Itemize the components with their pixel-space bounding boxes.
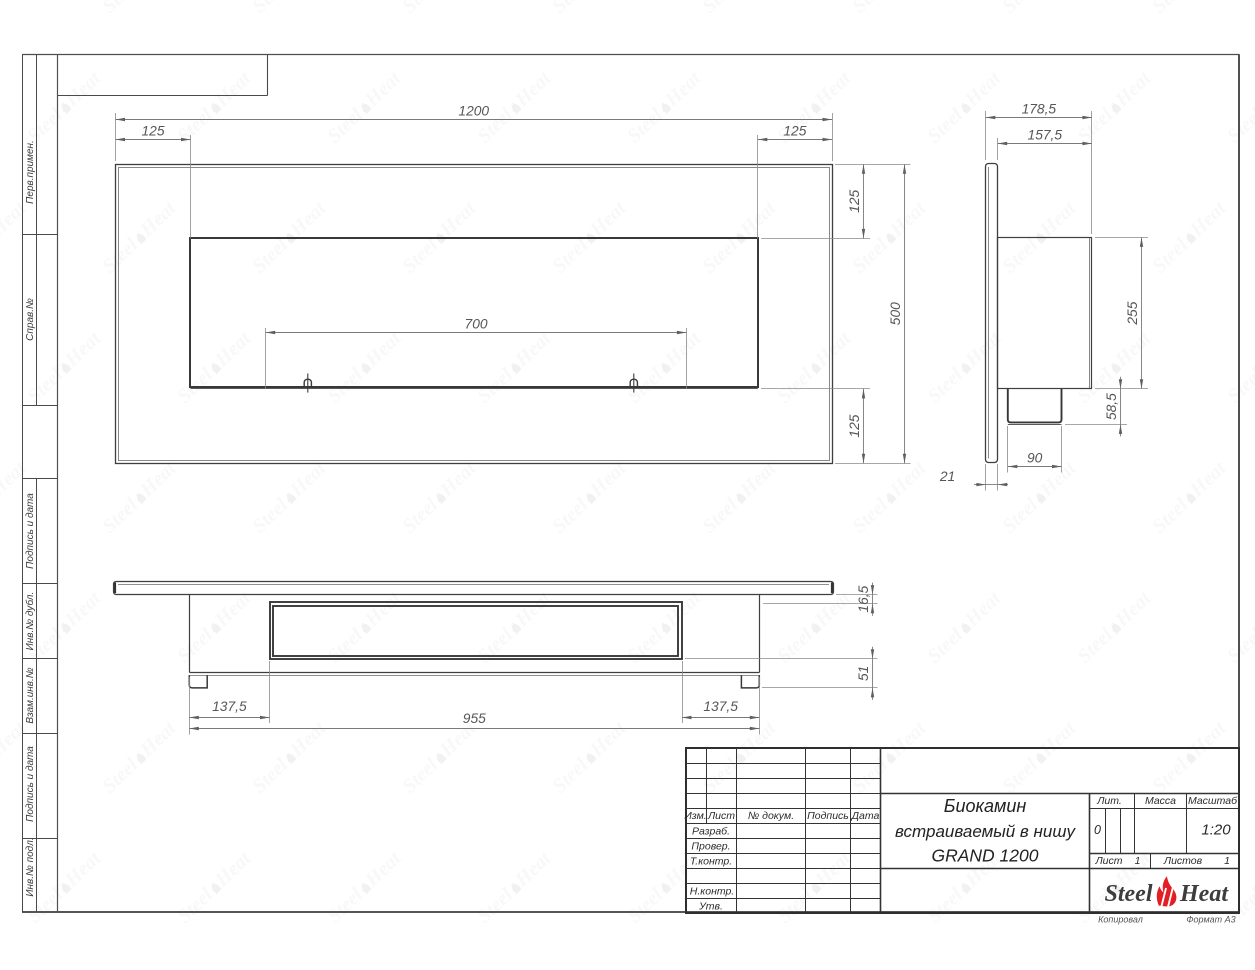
svg-text:21: 21 <box>939 469 955 484</box>
svg-text:Steel♞Heat: Steel♞Heat <box>173 66 256 147</box>
svg-text:Взам.инв.№: Взам.инв.№ <box>25 667 36 723</box>
svg-text:0: 0 <box>1094 823 1101 837</box>
svg-text:Перв.примен.: Перв.примен. <box>25 140 36 204</box>
svg-text:Дата: Дата <box>851 810 880 822</box>
svg-text:16,5: 16,5 <box>856 585 871 612</box>
svg-text:1200: 1200 <box>458 104 489 119</box>
svg-text:Steel♞Heat: Steel♞Heat <box>398 0 481 18</box>
svg-text:Справ.№: Справ.№ <box>25 298 36 341</box>
svg-text:Steel♞Heat: Steel♞Heat <box>773 846 856 927</box>
svg-text:Steel♞Heat: Steel♞Heat <box>773 326 856 407</box>
svg-text:Steel♞Heat: Steel♞Heat <box>548 456 631 537</box>
svg-text:Steel♞Heat: Steel♞Heat <box>173 846 256 927</box>
svg-text:Масса: Масса <box>1145 795 1176 807</box>
svg-text:Steel♞Heat: Steel♞Heat <box>1073 66 1156 147</box>
svg-text:Steel♞Heat: Steel♞Heat <box>323 66 406 147</box>
svg-text:125: 125 <box>847 414 862 437</box>
svg-text:Steel♞Heat: Steel♞Heat <box>98 196 181 277</box>
svg-text:Steel: Steel <box>1105 881 1153 907</box>
svg-text:1: 1 <box>1224 855 1230 867</box>
svg-text:Steel♞Heat: Steel♞Heat <box>23 66 106 147</box>
svg-text:Лист: Лист <box>707 810 735 822</box>
svg-text:Листов: Листов <box>1163 855 1203 867</box>
svg-text:Steel♞Heat: Steel♞Heat <box>248 456 331 537</box>
svg-text:Steel♞Heat: Steel♞Heat <box>173 586 256 667</box>
svg-text:1:20: 1:20 <box>1201 822 1231 839</box>
svg-text:Подпись: Подпись <box>807 810 849 822</box>
svg-text:Steel♞Heat: Steel♞Heat <box>848 0 931 18</box>
svg-text:Steel♞Heat: Steel♞Heat <box>698 456 781 537</box>
svg-text:Steel♞Heat: Steel♞Heat <box>173 326 256 407</box>
svg-text:Steel♞Heat: Steel♞Heat <box>548 0 631 18</box>
svg-text:GRAND 1200: GRAND 1200 <box>932 846 1039 866</box>
svg-text:Steel♞Heat: Steel♞Heat <box>698 0 781 18</box>
svg-text:Steel♞Heat: Steel♞Heat <box>1148 716 1231 797</box>
svg-text:1: 1 <box>1135 855 1141 867</box>
svg-text:51: 51 <box>856 666 871 681</box>
svg-text:Биокамин: Биокамин <box>944 796 1027 816</box>
svg-text:137,5: 137,5 <box>212 699 247 714</box>
svg-text:Н.контр.: Н.контр. <box>690 886 734 898</box>
svg-text:Steel♞Heat: Steel♞Heat <box>1148 0 1231 18</box>
svg-text:Steel♞Heat: Steel♞Heat <box>248 0 331 18</box>
svg-text:Steel♞Heat: Steel♞Heat <box>1148 196 1231 277</box>
svg-text:125: 125 <box>783 124 806 139</box>
svg-text:Steel♞Heat: Steel♞Heat <box>0 0 31 18</box>
svg-text:Steel♞Heat: Steel♞Heat <box>398 456 481 537</box>
svg-text:Steel♞Heat: Steel♞Heat <box>98 0 181 18</box>
svg-text:встраиваемый в нишу: встраиваемый в нишу <box>895 822 1076 841</box>
svg-text:Инв.№ подл.: Инв.№ подл. <box>25 837 36 896</box>
svg-text:Steel♞Heat: Steel♞Heat <box>773 586 856 667</box>
svg-text:125: 125 <box>141 124 164 139</box>
svg-text:Разраб.: Разраб. <box>692 826 730 838</box>
svg-text:Steel♞Heat: Steel♞Heat <box>323 846 406 927</box>
svg-text:Формат А3: Формат А3 <box>1186 915 1235 925</box>
svg-text:Т.контр.: Т.контр. <box>690 856 732 868</box>
svg-text:Steel♞Heat: Steel♞Heat <box>323 326 406 407</box>
svg-text:125: 125 <box>847 189 862 212</box>
svg-text:500: 500 <box>888 302 903 325</box>
svg-text:Steel♞Heat: Steel♞Heat <box>623 66 706 147</box>
svg-text:137,5: 137,5 <box>703 699 738 714</box>
svg-text:90: 90 <box>1027 451 1043 466</box>
svg-text:Лист: Лист <box>1094 855 1122 867</box>
svg-text:700: 700 <box>465 317 488 332</box>
svg-text:Steel♞Heat: Steel♞Heat <box>473 326 556 407</box>
svg-text:Steel♞Heat: Steel♞Heat <box>623 326 706 407</box>
svg-text:Подпись и дата: Подпись и дата <box>25 493 36 569</box>
svg-text:Копировал: Копировал <box>1098 915 1143 925</box>
svg-text:Подпись и дата: Подпись и дата <box>25 746 36 822</box>
svg-text:Steel♞Heat: Steel♞Heat <box>998 456 1081 537</box>
svg-text:Steel♞Heat: Steel♞Heat <box>1148 456 1231 537</box>
svg-text:157,5: 157,5 <box>1028 128 1063 143</box>
svg-text:58,5: 58,5 <box>1104 393 1119 420</box>
svg-text:Инв.№ дубл.: Инв.№ дубл. <box>24 592 36 651</box>
svg-text:Изм.: Изм. <box>684 810 706 822</box>
svg-text:Heat: Heat <box>1179 881 1229 907</box>
svg-text:Steel♞Heat: Steel♞Heat <box>98 456 181 537</box>
svg-text:955: 955 <box>463 711 486 726</box>
svg-text:Steel♞Heat: Steel♞Heat <box>0 196 31 277</box>
svg-text:Steel♞Heat: Steel♞Heat <box>848 456 931 537</box>
svg-text:Steel♞Heat: Steel♞Heat <box>923 66 1006 147</box>
svg-text:178,5: 178,5 <box>1022 102 1057 117</box>
svg-text:Steel♞Heat: Steel♞Heat <box>98 716 181 797</box>
svg-text:Steel♞Heat: Steel♞Heat <box>923 586 1006 667</box>
svg-text:Steel♞Heat: Steel♞Heat <box>998 716 1081 797</box>
svg-text:Утв.: Утв. <box>698 901 723 913</box>
svg-text:255: 255 <box>1125 301 1140 325</box>
svg-text:Steel♞Heat: Steel♞Heat <box>923 326 1006 407</box>
svg-text:Steel♞Heat: Steel♞Heat <box>848 716 931 797</box>
svg-text:Лит.: Лит. <box>1096 795 1122 807</box>
svg-text:№ докум.: № докум. <box>748 810 794 822</box>
svg-text:Провер.: Провер. <box>691 841 730 853</box>
svg-text:Масштаб: Масштаб <box>1188 795 1238 807</box>
svg-text:Steel♞Heat: Steel♞Heat <box>1073 586 1156 667</box>
svg-text:Steel♞Heat: Steel♞Heat <box>998 0 1081 18</box>
svg-text:Steel♞Heat: Steel♞Heat <box>473 846 556 927</box>
